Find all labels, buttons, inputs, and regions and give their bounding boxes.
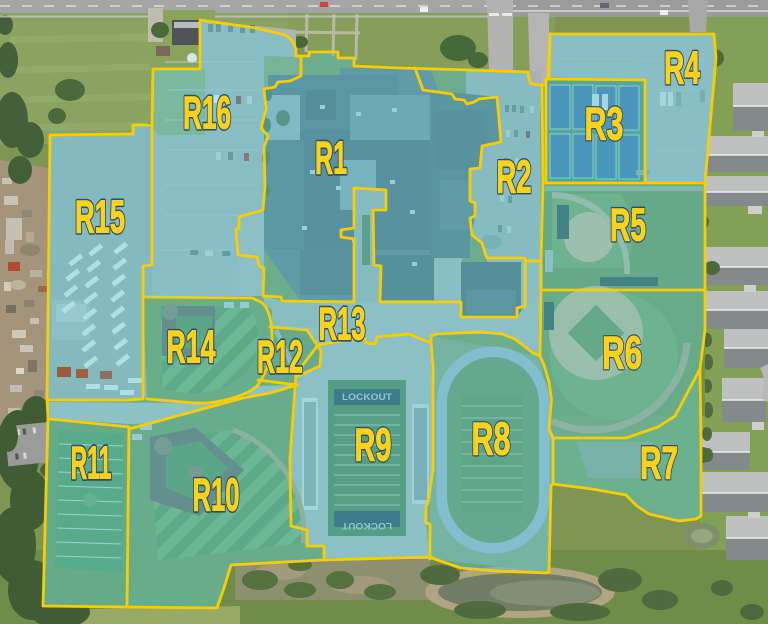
svg-text:R3: R3 <box>585 99 624 150</box>
svg-text:R6: R6 <box>602 328 642 379</box>
svg-text:R10: R10 <box>193 468 240 520</box>
svg-text:R13: R13 <box>319 297 366 349</box>
svg-text:R12: R12 <box>257 330 303 382</box>
svg-text:R9: R9 <box>355 420 392 471</box>
svg-text:R2: R2 <box>497 152 532 203</box>
svg-text:R8: R8 <box>472 414 511 465</box>
svg-text:R4: R4 <box>664 42 700 94</box>
svg-text:R1: R1 <box>315 131 347 183</box>
svg-text:R7: R7 <box>640 438 678 489</box>
svg-text:R11: R11 <box>71 437 112 489</box>
svg-text:R15: R15 <box>75 192 125 243</box>
svg-text:R14: R14 <box>166 321 215 372</box>
svg-text:R16: R16 <box>183 87 231 139</box>
svg-text:R5: R5 <box>610 199 646 251</box>
